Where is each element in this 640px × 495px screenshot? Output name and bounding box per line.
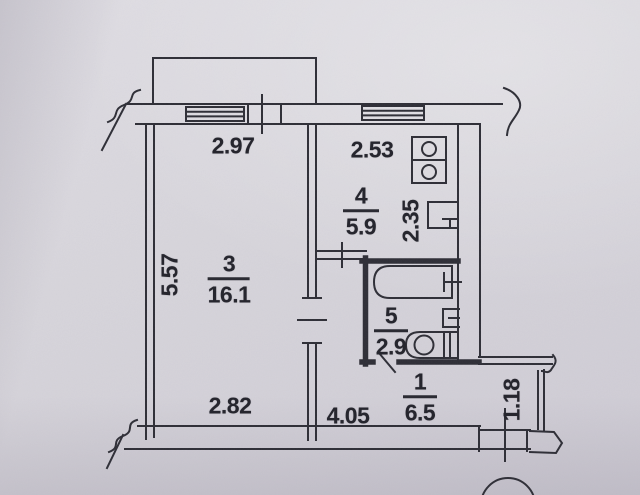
room-area: 16.1: [208, 283, 251, 306]
room-label-living-room: 3 16.1: [208, 252, 251, 306]
room-label-divider: [208, 277, 250, 280]
dimension-room3-width-bottom: 2.82: [209, 395, 252, 418]
paper-grain: [0, 0, 640, 495]
dimension-hall-width-bottom: 4.05: [327, 405, 370, 428]
dimension-room3-width-top: 2.97: [212, 135, 255, 158]
room-area: 5.9: [346, 215, 376, 238]
room-label-kitchen: 4 5.9: [343, 184, 379, 238]
room-number: 1: [414, 370, 426, 393]
dimension-kitchen-width-top: 2.53: [351, 139, 394, 162]
room-number: 3: [223, 252, 235, 275]
room-label-divider: [343, 209, 379, 212]
room-number: 4: [355, 184, 367, 207]
room-label-divider: [403, 395, 437, 398]
room-label-hallway: 1 6.5: [403, 370, 437, 424]
room-area: 6.5: [405, 401, 435, 424]
room-area: 2.9: [376, 335, 406, 358]
dimension-kitchen-depth: 2.35: [400, 200, 423, 243]
floor-plan-drawing: [0, 0, 640, 495]
dimension-entry-depth: 1.18: [501, 379, 524, 422]
floor-plan-photo: 2.97 2.53 2.35 5.57 2.82 4.05 1.18 3 16.…: [0, 0, 640, 495]
room-label-bathroom: 5 2.9: [374, 304, 408, 358]
room-label-divider: [374, 329, 408, 332]
dimension-room3-depth: 5.57: [159, 254, 182, 297]
room-number: 5: [385, 304, 397, 327]
